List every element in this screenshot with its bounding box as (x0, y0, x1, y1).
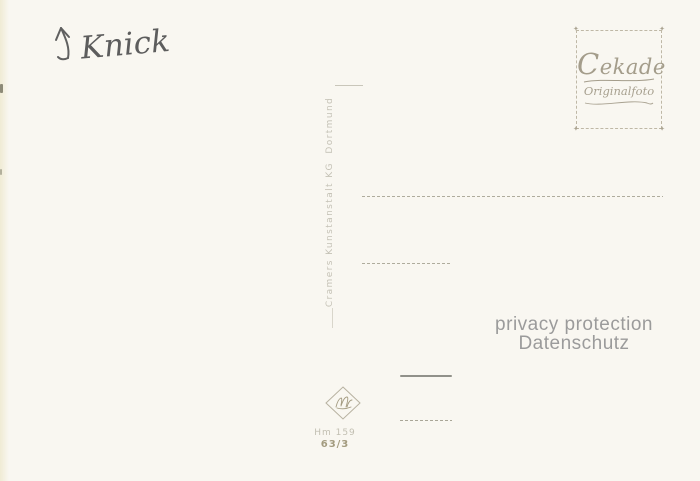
divider-dash (335, 85, 363, 86)
publisher-stamp: ✦ ✦ ✦ ✦ Cekade Originalfoto (576, 30, 662, 129)
privacy-watermark-line2: Datenschutz (486, 334, 662, 353)
print-code-number: 63/3 (303, 439, 367, 450)
edge-speck (0, 169, 2, 175)
card-left-edge (0, 0, 9, 481)
diamond-outline-icon (326, 387, 360, 419)
stamp-corner-ornament-icon: ✦ (659, 26, 665, 33)
stamp-brand-name: Cekade (577, 47, 661, 81)
bent-arrow-icon (56, 28, 69, 59)
monogram-icon (336, 397, 352, 409)
edge-speck (0, 84, 3, 93)
stamp-corner-ornament-icon: ✦ (573, 126, 579, 133)
stamp-area-line (400, 375, 452, 377)
print-code-series: Hm 159 (303, 428, 367, 438)
postcard-back: Knick ✦ ✦ ✦ ✦ Cekade Originalfoto Cramer… (0, 0, 700, 481)
subtitle-underline-flourish (583, 99, 655, 108)
publisher-imprint: Cramers Kunstanstalt KG Dortmund (325, 92, 337, 312)
address-line (362, 263, 450, 264)
printer-logo (325, 386, 361, 420)
stamp-subtitle: Originalfoto (577, 84, 661, 98)
privacy-watermark: privacy protection Datenschutz (486, 315, 662, 353)
handwritten-annotation: Knick (48, 14, 178, 66)
privacy-watermark-line1: privacy protection (486, 315, 662, 334)
address-line (362, 196, 663, 197)
handwritten-word: Knick (78, 23, 171, 66)
stamp-corner-ornament-icon: ✦ (659, 126, 665, 133)
stamp-corner-ornament-icon: ✦ (573, 26, 579, 33)
divider-dash (332, 308, 333, 328)
stamp-area-line (400, 420, 452, 421)
